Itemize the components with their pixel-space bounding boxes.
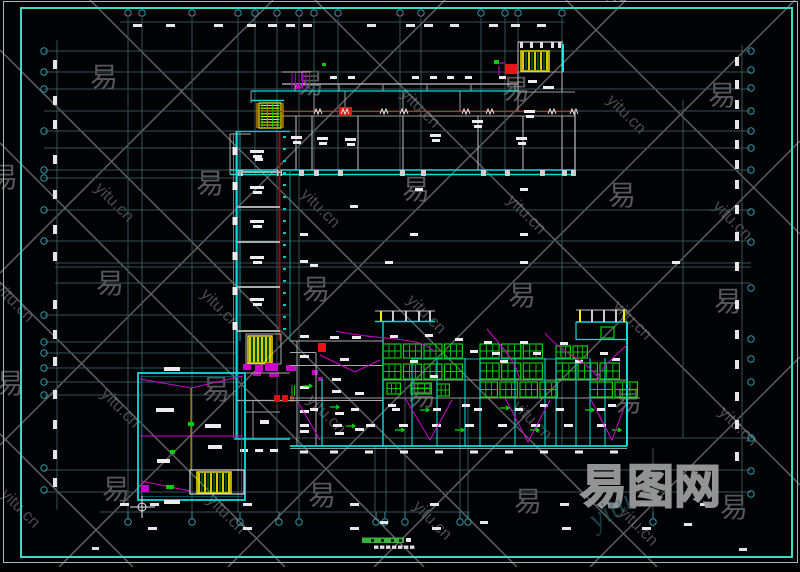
- svg-text:易: 易: [508, 280, 536, 311]
- svg-text:易: 易: [0, 162, 18, 193]
- svg-text:易: 易: [602, 0, 630, 5]
- svg-text:易: 易: [90, 62, 118, 93]
- svg-text:易: 易: [608, 180, 636, 211]
- svg-text:易: 易: [514, 486, 542, 517]
- svg-text:易: 易: [202, 374, 230, 405]
- svg-text:易: 易: [720, 492, 748, 523]
- svg-text:易: 易: [302, 274, 330, 305]
- svg-text:易: 易: [102, 474, 130, 505]
- svg-text:易: 易: [196, 168, 224, 199]
- svg-text:易: 易: [308, 480, 336, 511]
- svg-text:易: 易: [708, 80, 736, 111]
